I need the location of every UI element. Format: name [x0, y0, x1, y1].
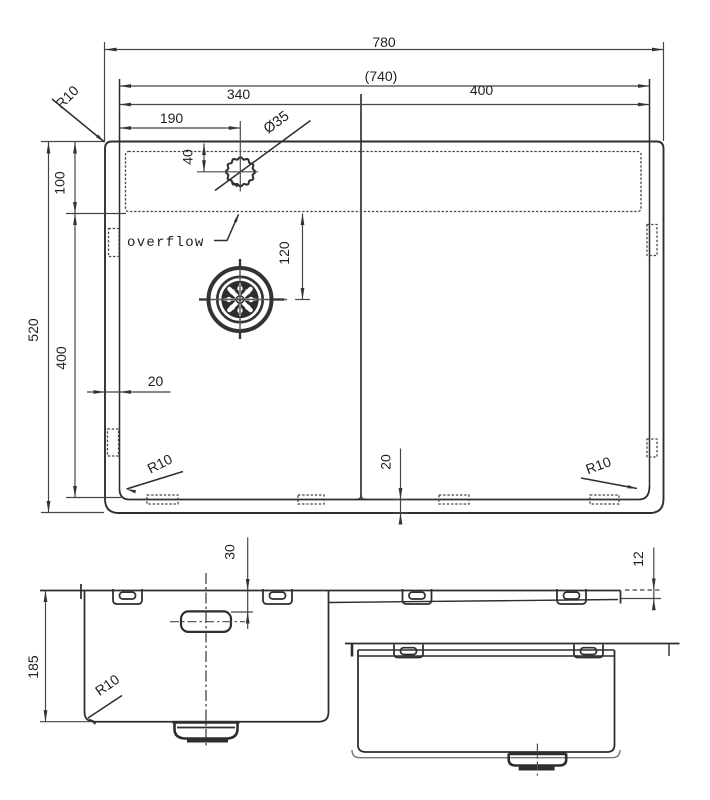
svg-text:40: 40 — [180, 149, 196, 165]
svg-text:R10: R10 — [583, 453, 613, 477]
svg-text:190: 190 — [160, 110, 184, 126]
svg-text:120: 120 — [276, 241, 292, 265]
svg-text:R10: R10 — [92, 671, 122, 699]
svg-text:12: 12 — [630, 551, 646, 567]
svg-text:520: 520 — [25, 318, 41, 342]
svg-text:(740): (740) — [365, 68, 398, 84]
svg-text:R10: R10 — [145, 450, 175, 476]
svg-text:30: 30 — [222, 544, 238, 560]
svg-text:185: 185 — [25, 655, 41, 679]
svg-text:400: 400 — [53, 346, 69, 370]
svg-text:400: 400 — [470, 82, 494, 98]
svg-text:20: 20 — [148, 373, 164, 389]
svg-text:780: 780 — [372, 34, 396, 50]
svg-text:340: 340 — [227, 86, 251, 102]
svg-text:Ø35: Ø35 — [261, 108, 293, 137]
svg-text:100: 100 — [52, 171, 68, 195]
svg-text:R10: R10 — [52, 82, 82, 112]
svg-text:overflow: overflow — [127, 235, 205, 251]
svg-text:20: 20 — [378, 454, 394, 470]
